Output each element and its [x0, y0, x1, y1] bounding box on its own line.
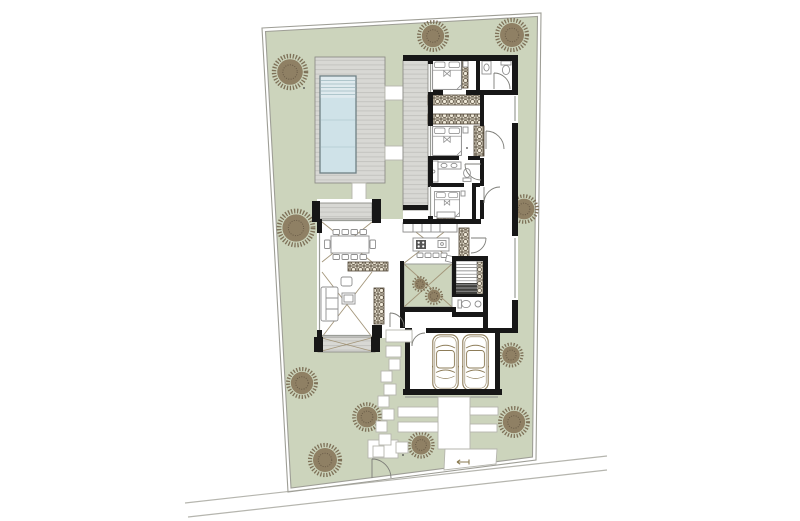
driveway-step: [398, 407, 438, 417]
bed-1: [433, 61, 462, 90]
staircase: [456, 261, 477, 294]
deck-pad: [385, 146, 403, 160]
stepping-stone: [382, 409, 394, 420]
storage-unit: [428, 95, 482, 105]
stepping-stone: [373, 446, 384, 457]
site-plan-page: [0, 0, 800, 521]
bed-2: [433, 127, 462, 156]
driveway-apron: [444, 449, 497, 470]
driveway-step: [470, 407, 498, 415]
stepping-stone: [378, 396, 389, 407]
nightstand: [463, 127, 468, 133]
armchair: [341, 277, 352, 286]
stepping-stone: [376, 421, 387, 432]
plan-speck: [466, 147, 468, 149]
storage-unit: [374, 288, 384, 324]
storage-unit: [459, 228, 469, 258]
garage-floor: [405, 333, 500, 390]
stepping-stone: [389, 359, 400, 370]
courtyard: [404, 264, 452, 307]
driveway-step: [438, 397, 470, 449]
stepping-stone: [396, 442, 408, 453]
plan-speck: [303, 87, 305, 89]
plan-speck: [402, 454, 404, 456]
dining-table: [331, 236, 369, 253]
north-terrace-deck: [318, 203, 372, 219]
site-plan-drawing: [0, 0, 800, 521]
driveway-step: [398, 422, 438, 432]
stepping-stone: [384, 384, 396, 395]
entry-porch: [386, 330, 412, 342]
cooktop: [416, 240, 426, 249]
storage-unit: [474, 126, 484, 156]
stepping-stone: [386, 346, 401, 357]
sofa: [321, 287, 338, 321]
driveway-step: [470, 424, 497, 432]
stepping-stone: [379, 434, 391, 445]
kitchen-sink: [438, 241, 446, 248]
covered-walkway-deck: [403, 60, 428, 210]
road-edge-line: [188, 470, 607, 517]
deck-pad: [385, 86, 403, 100]
stepping-stone: [381, 371, 392, 382]
bed-end-bench: [437, 212, 455, 218]
nightstand: [461, 191, 465, 196]
nightstand: [463, 61, 468, 67]
storage-unit: [348, 262, 388, 271]
storage-unit: [428, 114, 482, 124]
